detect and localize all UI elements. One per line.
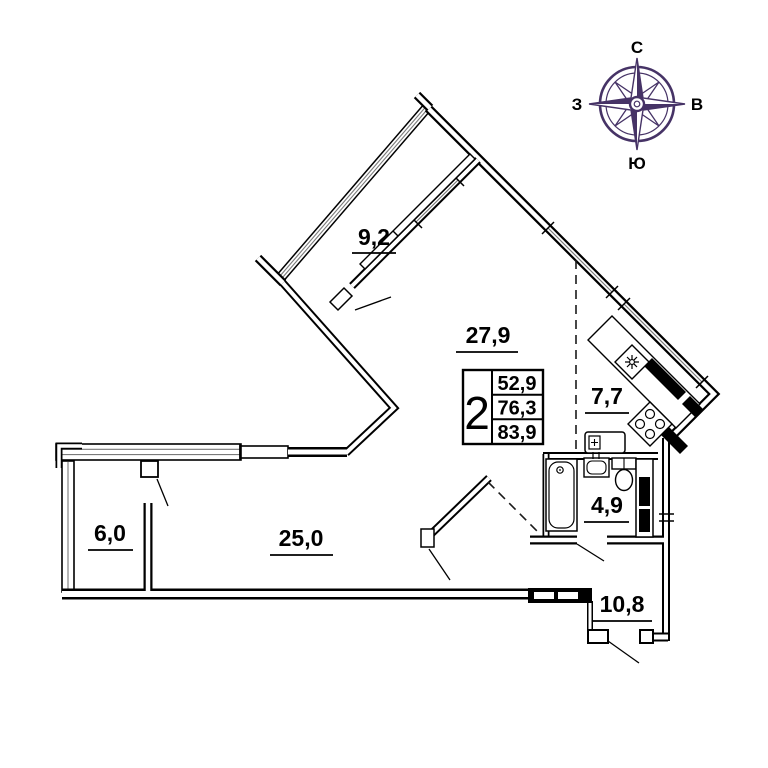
compass-north-label: С [631, 38, 643, 57]
info-box: 2 52,9 76,3 83,9 [463, 370, 543, 444]
area-value-1: 52,9 [498, 373, 537, 395]
door-swing-line [157, 479, 168, 506]
door-swing-line [608, 641, 639, 663]
area-value-3: 83,9 [498, 422, 537, 444]
compass-west-label: З [572, 95, 583, 114]
room-area-label-kitchen: 7,7 [591, 383, 623, 409]
living-room-door [421, 529, 450, 580]
room-area-label-living-room: 27,9 [466, 322, 511, 348]
entrance-door [588, 630, 653, 663]
compass-south-label: Ю [628, 154, 646, 173]
room-area-label-bedroom: 25,0 [279, 525, 324, 551]
floor-plan-svg: 9,2 27,9 7,7 4,9 6,0 25,0 10,8 2 52,9 76… [0, 0, 768, 768]
rooms-count: 2 [464, 387, 490, 439]
door-swing-line [577, 544, 604, 561]
loggia-door [141, 461, 168, 506]
ventilation-shaft [636, 459, 653, 537]
toilet-icon [612, 458, 636, 491]
door-swing-line [429, 549, 450, 580]
balcony-door [330, 288, 391, 310]
balcony-partition-window [410, 174, 464, 228]
window-lintel [240, 446, 288, 458]
window-band-west [62, 461, 74, 592]
hall-zone-dashed-line [488, 482, 540, 534]
compass-east-label: В [691, 95, 703, 114]
washing-machine-icon [585, 432, 625, 453]
window-band-balcony [276, 103, 432, 282]
bathroom-door [577, 544, 604, 561]
room-area-label-bathroom: 4,9 [591, 492, 623, 518]
window-band-top [56, 444, 241, 460]
room-area-label-hallway: 10,8 [600, 591, 645, 617]
bathtub-icon [546, 459, 577, 531]
filled-wall-segment [528, 588, 592, 603]
room-labels: 9,2 27,9 7,7 4,9 6,0 25,0 10,8 [88, 224, 652, 621]
door-swing-line [355, 297, 391, 310]
area-value-2: 76,3 [498, 398, 537, 420]
room-area-label-balcony: 9,2 [358, 224, 390, 250]
room-area-label-loggia: 6,0 [94, 520, 126, 546]
compass-rose: С Ю З В [572, 38, 703, 173]
